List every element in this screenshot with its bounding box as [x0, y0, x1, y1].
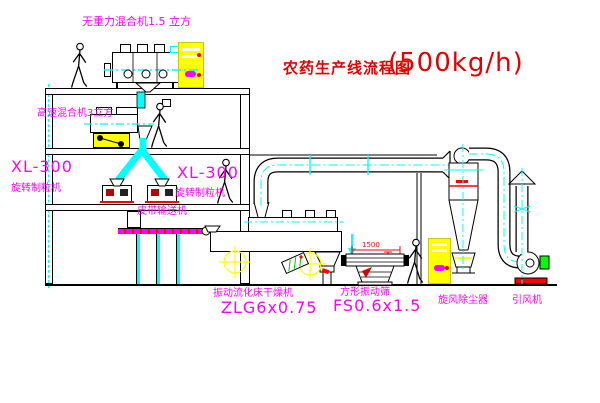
label-screen-model: FS0.6x1.5 [333, 298, 421, 314]
dimension-screen-width: 1500 [362, 242, 380, 249]
label-mixer-mid: 高速混合机3立方 [37, 109, 113, 119]
center-mark [219, 246, 326, 280]
label-dryer-model: ZLG6x0.75 [221, 300, 318, 316]
person-figure [152, 103, 167, 147]
mixer-discharge-pipe [136, 83, 160, 108]
cyclone-dim-mark [456, 180, 468, 183]
diagram-capacity: (500kg/h) [388, 48, 524, 78]
vibration-motor [282, 253, 309, 274]
person-figure [72, 43, 87, 87]
fluid-bed-dryer-details [219, 222, 344, 284]
label-granulator-right: 旋转制粒机 [175, 189, 225, 199]
label-granulator-right-model: XL-300 [177, 165, 239, 181]
label-fan: 引风机 [512, 296, 542, 306]
label-cyclone: 旋风除尘器 [438, 296, 488, 306]
cyclone-separator [444, 144, 483, 273]
conveyor-head [202, 226, 220, 235]
process-flow-diagram: 农药生产线流程图 (500kg/h) 无重力混合机1.5 立方 高速混合机3立方… [0, 0, 600, 403]
mixer-shaft [104, 53, 198, 82]
label-granulator-left: 旋转制粒机 [11, 184, 61, 194]
label-mixer-top: 无重力混合机1.5 立方 [82, 16, 191, 27]
label-granulator-left-model: XL-300 [11, 159, 73, 175]
label-conveyor: 皮带输送机 [137, 207, 187, 217]
person-figure [408, 239, 423, 283]
